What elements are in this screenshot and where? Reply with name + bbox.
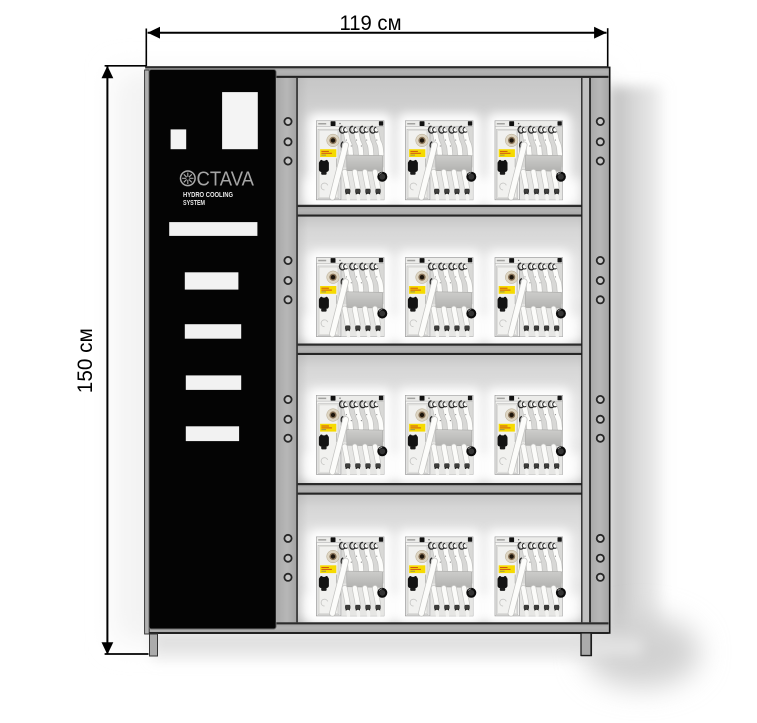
svg-text:150 см: 150 см [73, 328, 97, 393]
svg-text:HYDRO COOLING: HYDRO COOLING [183, 192, 233, 199]
svg-text:SYSTEM: SYSTEM [183, 200, 205, 207]
svg-text:119 см: 119 см [340, 11, 402, 35]
svg-text:CTAVA: CTAVA [197, 169, 255, 191]
